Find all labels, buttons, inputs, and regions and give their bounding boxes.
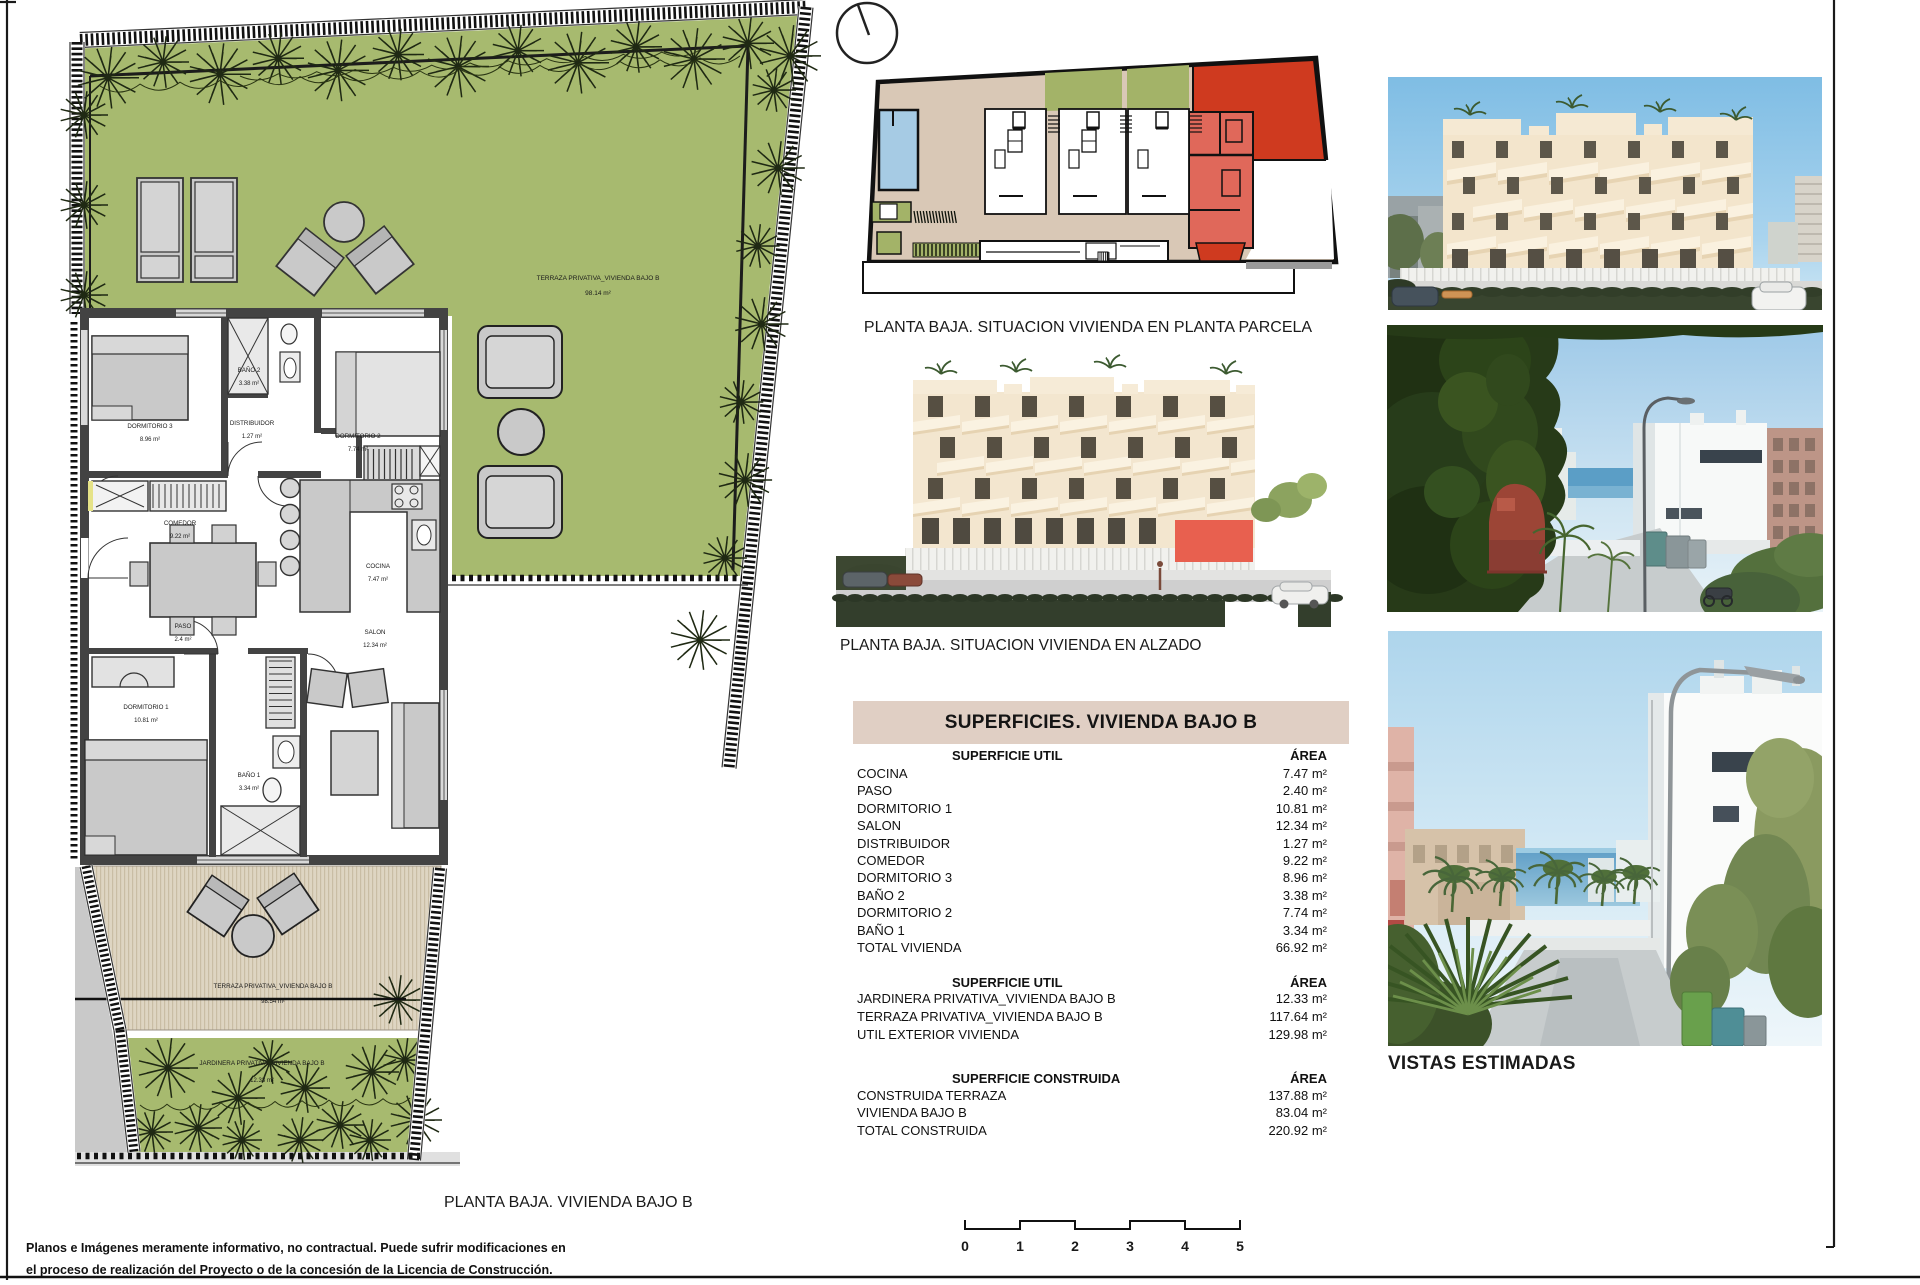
svg-text:COMEDOR: COMEDOR [164,520,197,527]
svg-text:8.96 m²: 8.96 m² [140,437,160,443]
svg-text:3.38 m²: 3.38 m² [239,381,259,387]
svg-text:JARDINERA PRIVATIVA_VIVIENDA B: JARDINERA PRIVATIVA_VIVIENDA BAJO B [199,1060,324,1067]
svg-text:SALON: SALON [365,629,386,636]
svg-text:COCINA: COCINA [366,563,391,570]
svg-text:2.4 m²: 2.4 m² [174,637,191,643]
svg-text:PLANTA BAJA. SITUACION VIVIEND: PLANTA BAJA. SITUACION VIVIENDA EN PLANT… [864,319,1312,336]
svg-text:0: 0 [961,1238,969,1254]
svg-text:12.33 m²: 12.33 m² [250,1078,274,1084]
svg-text:1.27 m²: 1.27 m² [242,434,262,440]
svg-text:DORMITORIO 3: DORMITORIO 3 [127,423,173,430]
svg-text:DISTRIBUIDOR: DISTRIBUIDOR [230,420,275,427]
svg-text:DORMITORIO 2: DORMITORIO 2 [335,433,381,440]
svg-text:DORMITORIO 1: DORMITORIO 1 [123,704,169,711]
svg-text:9.22 m²: 9.22 m² [170,534,190,540]
svg-text:4: 4 [1181,1238,1189,1254]
svg-text:PLANTA BAJA. SITUACION VIVIEND: PLANTA BAJA. SITUACION VIVIENDA EN ALZAD… [840,637,1201,654]
svg-text:7.74 m²: 7.74 m² [348,447,368,453]
svg-text:TERRAZA PRIVATIVA_VIVIENDA BAJ: TERRAZA PRIVATIVA_VIVIENDA BAJO B [537,275,660,282]
svg-text:3.34 m²: 3.34 m² [239,786,259,792]
svg-text:12.34 m²: 12.34 m² [363,643,387,649]
svg-text:PASO: PASO [175,623,192,630]
svg-text:BAÑO 2: BAÑO 2 [238,367,261,374]
svg-text:10.81 m²: 10.81 m² [134,718,158,724]
svg-text:98.14 m²: 98.14 m² [585,290,611,297]
svg-text:3: 3 [1126,1238,1134,1254]
svg-text:BAÑO 1: BAÑO 1 [238,772,261,779]
svg-text:5: 5 [1236,1238,1244,1254]
svg-text:1: 1 [1016,1238,1024,1254]
svg-text:2: 2 [1071,1238,1079,1254]
svg-text:TERRAZA PRIVATIVA_VIVIENDA BAJ: TERRAZA PRIVATIVA_VIVIENDA BAJO B [214,983,333,990]
svg-text:7.47 m²: 7.47 m² [368,577,388,583]
